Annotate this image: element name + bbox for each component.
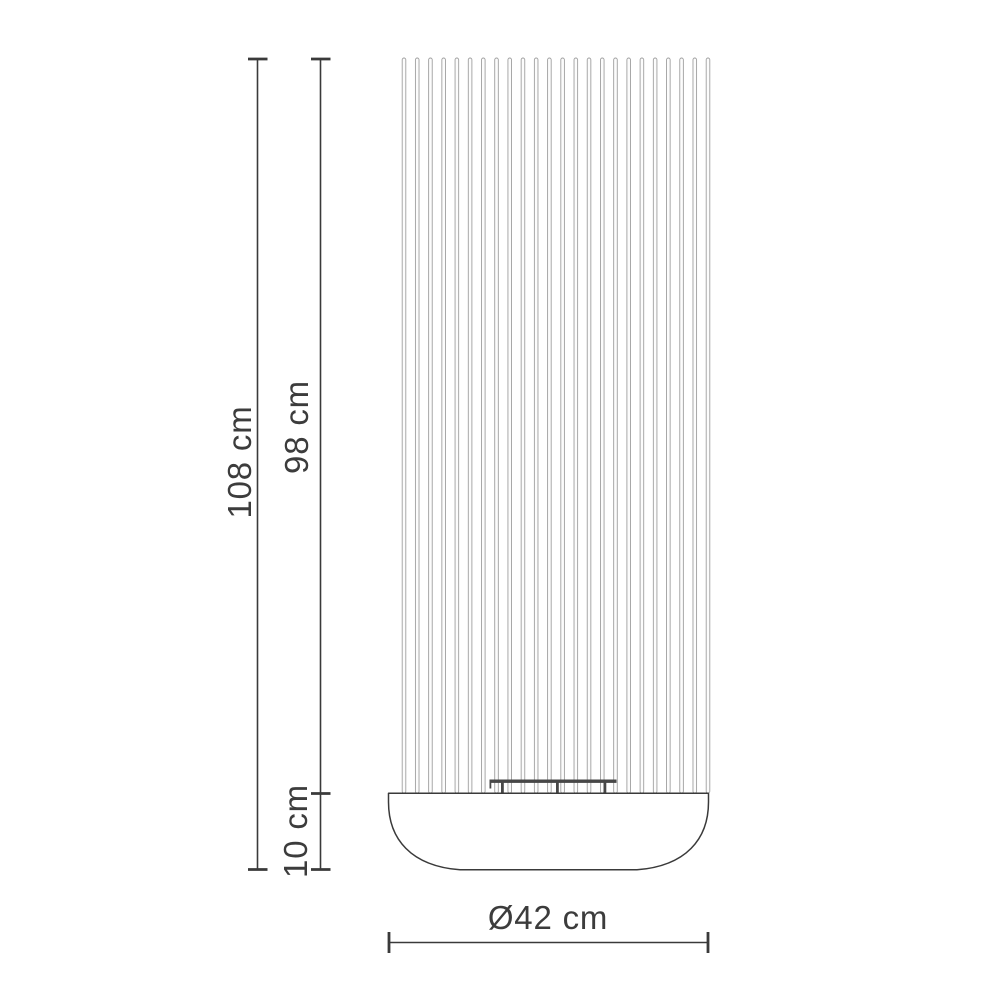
bracket-leg-center [556, 783, 559, 795]
dim-label-base-height: 10 cm [277, 784, 315, 878]
rod [455, 58, 459, 793]
dimension-drawing-canvas: 108 cm 98 cm 10 cm Ø42 cm [0, 0, 1000, 1000]
rod [548, 58, 552, 793]
rod [442, 58, 446, 793]
rod [415, 58, 419, 793]
rod [614, 58, 618, 793]
rod [429, 58, 433, 793]
dim-label-diameter: Ø42 cm [488, 899, 608, 937]
dim-label-rod-section-height: 98 cm [278, 380, 316, 474]
rod [693, 58, 697, 793]
rod [468, 58, 472, 793]
rod [667, 58, 671, 793]
rod [534, 58, 538, 793]
rod [402, 58, 406, 793]
rod [495, 58, 499, 793]
rod [482, 58, 486, 793]
drawing-svg [0, 0, 1000, 1000]
bracket-bar [490, 780, 617, 783]
rod [627, 58, 631, 793]
base-bowl [389, 793, 709, 870]
bracket-leg-right [604, 783, 607, 795]
rod [574, 58, 578, 793]
rod-array [402, 58, 710, 793]
dim-label-total-height: 108 cm [221, 405, 259, 518]
rod [521, 58, 525, 793]
rod [508, 58, 512, 793]
rod [600, 58, 604, 793]
rod [653, 58, 657, 793]
rod [587, 58, 591, 793]
rod [680, 58, 684, 793]
bracket-leg-left [501, 783, 504, 795]
rod [561, 58, 565, 793]
rod [706, 58, 710, 793]
bracket-left-tick [490, 783, 492, 789]
rod [640, 58, 644, 793]
